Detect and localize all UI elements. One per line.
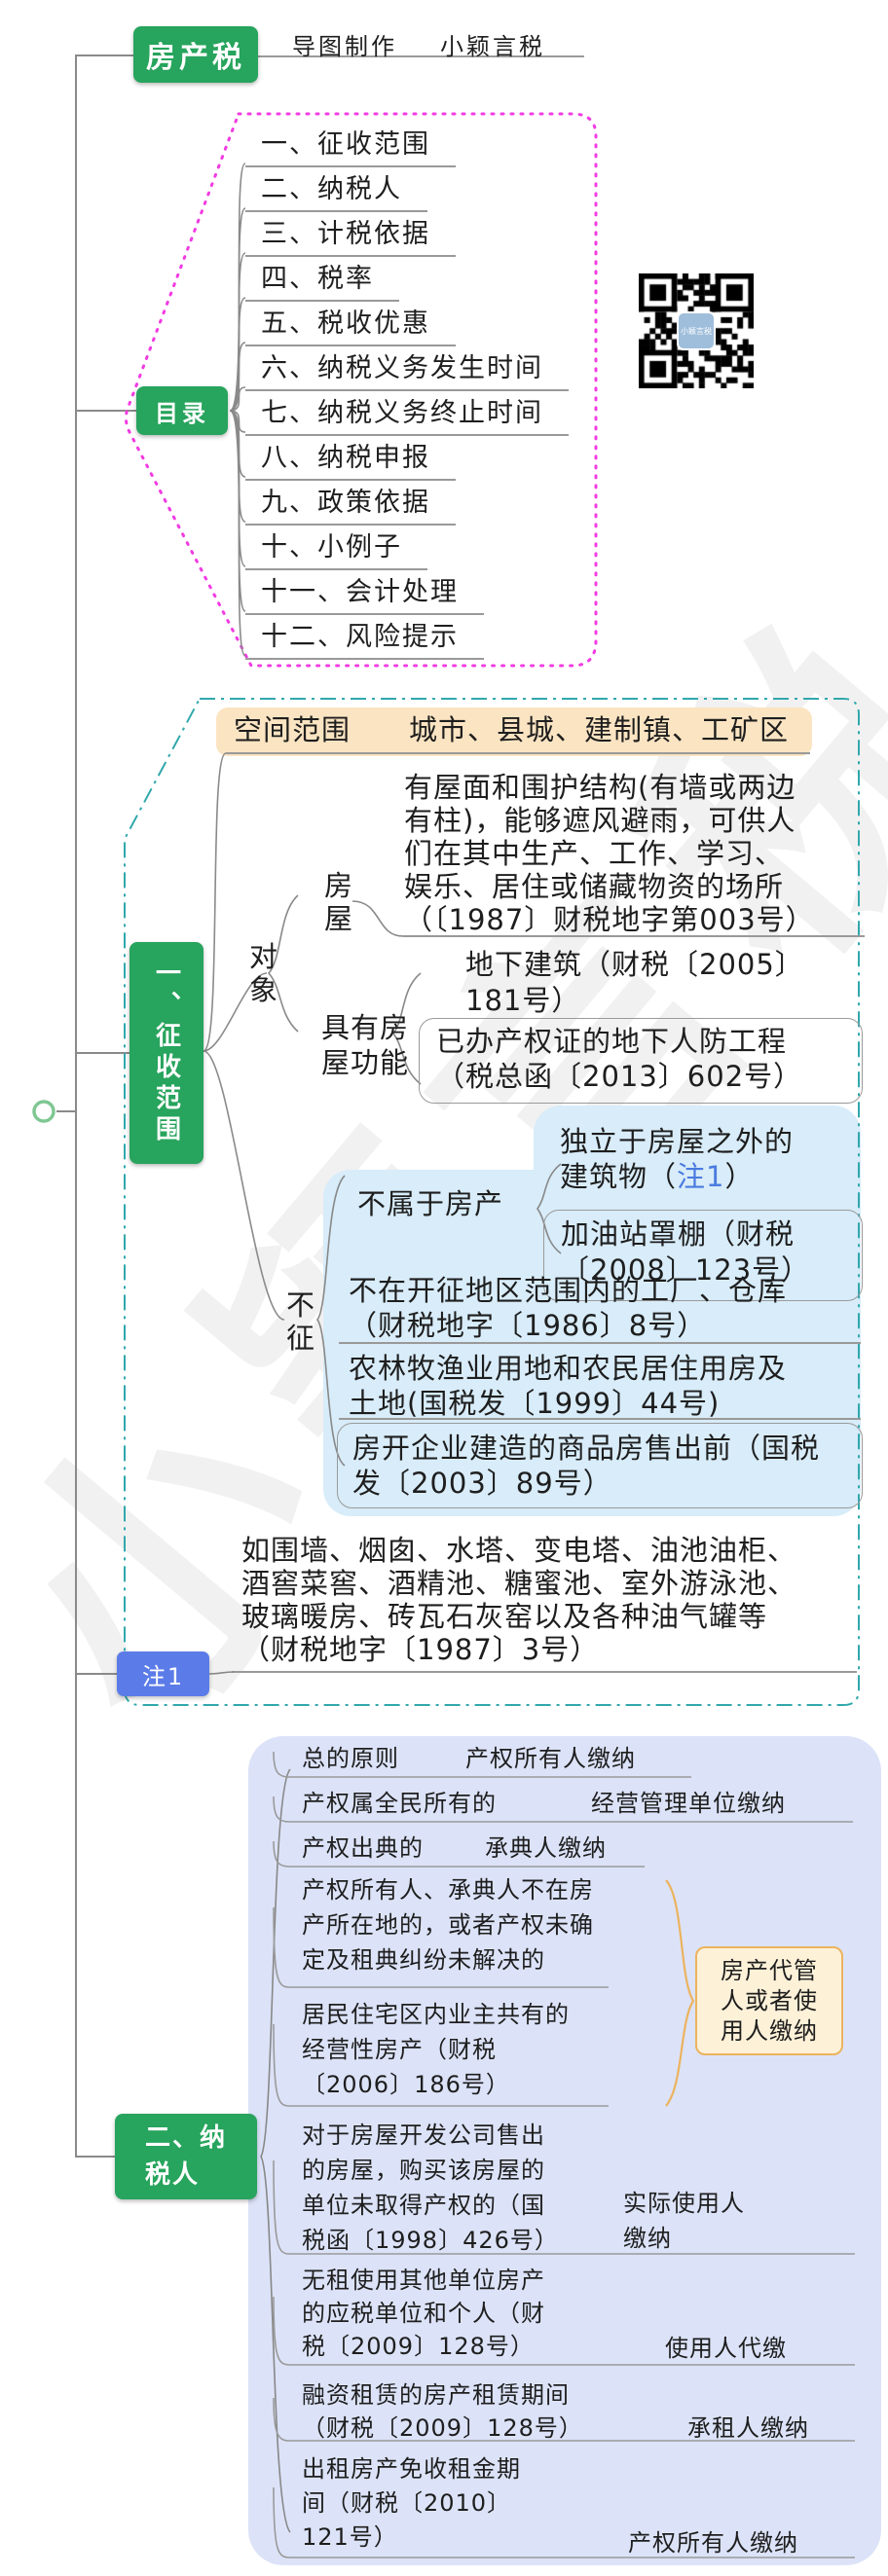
excluded-brace <box>317 1176 345 1466</box>
civil-defense-text[interactable]: 已办产权证的地下人防工程 （税总函〔2013〕602号） <box>436 1024 802 1094</box>
note1-reference[interactable]: 注1 <box>677 1160 724 1193</box>
s2-row5-condition[interactable]: 居民住宅区内业主共有的 经营性房产（财税 〔2006〕186号） <box>302 1997 570 2102</box>
independent-structure-line2[interactable]: 建筑物（注1） <box>560 1160 754 1193</box>
space-scope-value[interactable]: 城市、县城、建制镇、工矿区 <box>409 713 789 746</box>
toc-item-9[interactable]: 九、政策依据 <box>245 487 456 526</box>
s2-row9-condition[interactable]: 出租房产免收租金期 间（财税〔2010〕 121号） <box>302 2452 521 2555</box>
root-topic[interactable]: 房产税 <box>133 26 258 83</box>
factory-warehouse-text[interactable]: 不在开征地区范围内的工厂、仓库 （财税地字〔1986〕8号） <box>349 1273 787 1343</box>
toc-item-12[interactable]: 十二、风险提示 <box>245 621 484 660</box>
toc-item-11[interactable]: 十一、会计处理 <box>245 576 484 615</box>
house-definition[interactable]: 有屋面和围护结构(有墙或两边 有柱)，能够遮风避雨，可供人 们在其中生产、工作、… <box>404 771 865 936</box>
wechat-qr-code: 小颖言税 <box>639 273 754 388</box>
toc-item-3[interactable]: 三、计税依据 <box>245 218 456 257</box>
underground-building[interactable]: 地下建筑（财税〔2005〕 181号） <box>465 947 804 1019</box>
shared-payer-brace <box>666 1880 693 2106</box>
s2-row8-condition[interactable]: 融资租赁的房产租赁期间 （财税〔2009〕128号） <box>302 2378 583 2445</box>
shared-payer-callout[interactable]: 房产代管人或者使用人缴纳 <box>695 1946 843 2055</box>
root-node-circle[interactable] <box>34 1102 54 1121</box>
house-function-label[interactable]: 具有房屋功能 <box>321 1010 413 1080</box>
s2-row1-payer[interactable]: 产权所有人缴纳 <box>465 1742 636 1775</box>
s1-topic[interactable]: 一、征收范围 <box>129 942 203 1164</box>
s2-row4-condition[interactable]: 产权所有人、承典人不在房 产所在地的，或者产权未确 定及租典纠纷未解决的 <box>302 1872 594 1977</box>
s2-row2-payer[interactable]: 经营管理单位缴纳 <box>591 1787 786 1820</box>
toc-item-2[interactable]: 二、纳税人 <box>245 173 427 212</box>
mindmap-canvas: 小颖言税 <box>0 0 888 2576</box>
toc-topic[interactable]: 目录 <box>136 386 228 435</box>
note1-topic[interactable]: 注1 <box>117 1651 209 1696</box>
s2-row9-payer[interactable]: 产权所有人缴纳 <box>628 2526 798 2559</box>
toc-item-5[interactable]: 五、税收优惠 <box>245 308 456 346</box>
s2-row6-condition[interactable]: 对于房屋开发公司售出 的房屋，购买该房屋的 单位未取得产权的（国 税函〔1998… <box>302 2118 559 2258</box>
house-label[interactable]: 房屋 <box>324 869 357 935</box>
farm-land-text[interactable]: 农林牧渔业用地和农民居住用房及 土地(国税发〔1999〕44号) <box>349 1351 787 1421</box>
s2-row7-payer[interactable]: 使用人代缴 <box>665 2332 787 2365</box>
toc-item-1[interactable]: 一、征收范围 <box>245 128 456 167</box>
object-label[interactable]: 对象 <box>249 940 282 1006</box>
developer-text[interactable]: 房开企业建造的商品房售出前（国税 发〔2003〕89号） <box>352 1431 820 1501</box>
independent-pre: 建筑物（ <box>560 1160 677 1193</box>
toc-item-6[interactable]: 六、纳税义务发生时间 <box>245 352 569 391</box>
s2-row3-condition[interactable]: 产权出典的 <box>302 1832 424 1865</box>
s2-row1-condition[interactable]: 总的原则 <box>302 1742 399 1775</box>
toc-item-10[interactable]: 十、小例子 <box>245 531 427 570</box>
s2-topic[interactable]: 二、纳税人 <box>115 2114 257 2199</box>
space-scope-label[interactable]: 空间范围 <box>234 713 351 746</box>
qr-center-logo: 小颖言税 <box>677 311 716 350</box>
toc-item-7[interactable]: 七、纳税义务终止时间 <box>245 397 569 436</box>
credit-author[interactable]: 小颖言税 <box>440 27 545 61</box>
independent-suf: ） <box>724 1160 754 1193</box>
toc-item-8[interactable]: 八、纳税申报 <box>245 442 456 481</box>
taxpayer-brace <box>261 1769 290 2532</box>
s2-row3-payer[interactable]: 承典人缴纳 <box>485 1832 607 1865</box>
not-property-label[interactable]: 不属于房产 <box>357 1187 503 1220</box>
s2-row8-payer[interactable]: 承租人缴纳 <box>687 2412 809 2445</box>
note1-text[interactable]: 如围墙、烟囱、水塔、变电塔、油池油柜、 酒窖菜窖、酒精池、糖蜜池、室外游泳池、 … <box>241 1534 796 1666</box>
s2-row7-condition[interactable]: 无租使用其他单位房产 的应税单位和个人（财 税〔2009〕128号） <box>302 2264 545 2363</box>
independent-structure-line1[interactable]: 独立于房屋之外的 <box>560 1125 794 1158</box>
toc-item-4[interactable]: 四、税率 <box>245 263 399 302</box>
excluded-label[interactable]: 不征 <box>286 1288 319 1355</box>
s2-row2-condition[interactable]: 产权属全民所有的 <box>302 1787 497 1820</box>
credit-label[interactable]: 导图制作 <box>292 27 397 61</box>
s2-row6-payer[interactable]: 实际使用人缴纳 <box>623 2186 750 2256</box>
